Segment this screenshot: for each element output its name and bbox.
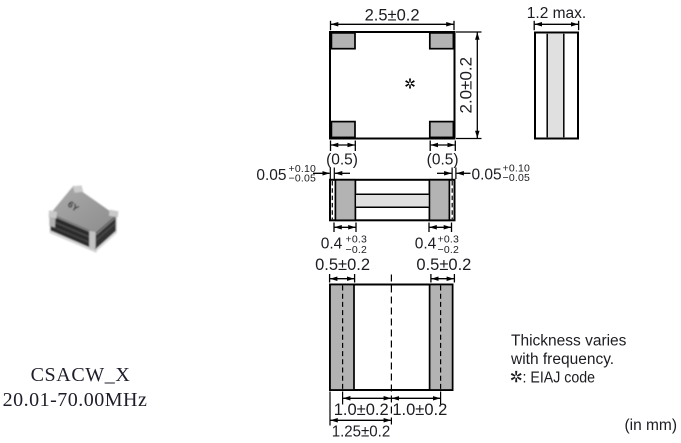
svg-text:(in mm): (in mm) [624,417,677,434]
svg-text:CSACW_X: CSACW_X [31,364,131,386]
svg-text:20.01-70.00MHz: 20.01-70.00MHz [3,389,148,411]
svg-text:0.4: 0.4 [415,236,437,253]
svg-text:with frequency.: with frequency. [510,351,614,368]
svg-text:1.2 max.: 1.2 max. [527,5,586,22]
svg-text:: EIAJ code: : EIAJ code [523,369,596,386]
svg-text:(0.5): (0.5) [427,151,459,168]
svg-text:2.5±0.2: 2.5±0.2 [365,7,420,25]
svg-text:Thickness varies: Thickness varies [511,332,627,349]
svg-text:−0.05: −0.05 [503,172,531,184]
svg-text:0.05: 0.05 [472,167,502,184]
svg-text:−0.2: −0.2 [346,244,368,256]
svg-text:2.0±0.2: 2.0±0.2 [456,57,475,114]
svg-text:−0.05: −0.05 [289,173,317,185]
svg-text:0.4: 0.4 [321,236,343,253]
svg-text:(0.5): (0.5) [326,151,358,168]
svg-text:0.5±0.2: 0.5±0.2 [416,256,471,274]
svg-text:0.05: 0.05 [256,167,286,184]
svg-text:0.5±0.2: 0.5±0.2 [315,256,370,274]
svg-text:1.0±0.2: 1.0±0.2 [392,401,447,419]
svg-text:1.0±0.2: 1.0±0.2 [334,401,389,419]
svg-text:−0.2: −0.2 [438,244,460,256]
svg-text:1.25±0.2: 1.25±0.2 [332,424,391,441]
